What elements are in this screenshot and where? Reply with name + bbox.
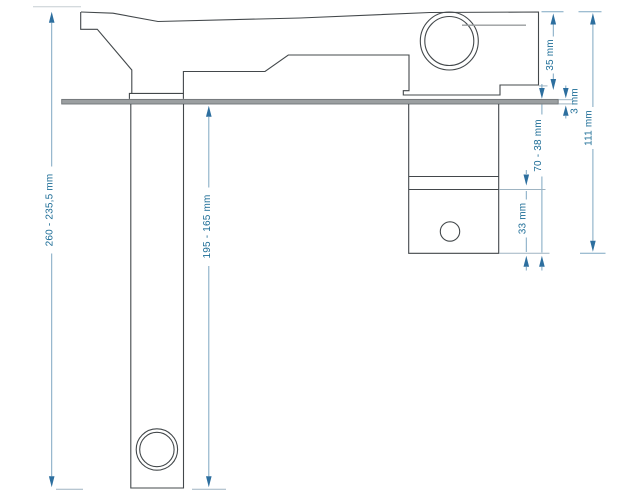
- faucet-dimension-diagram: 260 - 235,5 mm 195 - 165 mm 35 mm 3 mm: [0, 0, 643, 500]
- downpipe-outlet-outer-circle: [136, 429, 177, 470]
- mounting-shaft-path: [409, 104, 499, 253]
- faucet-body-outline: [81, 12, 539, 99]
- dim-35-arrow-down: [551, 79, 557, 90]
- mounting-screw-hole: [440, 222, 459, 241]
- dim-111-arrow-down: [590, 241, 596, 252]
- dim-111-label: 111 mm: [584, 110, 595, 146]
- dim-33-arrow-down-top: [524, 175, 530, 186]
- dim-total-height-label: 260 - 235,5 mm: [44, 174, 55, 247]
- downpipe: [131, 104, 184, 488]
- dim-35-label: 35 mm: [545, 39, 556, 71]
- dim-70-arrow-down-top: [539, 88, 545, 99]
- dim-body-height: 35 mm: [539, 12, 564, 90]
- dim-under-counter-clearance: 195 - 165 mm: [192, 106, 226, 490]
- control-cartridge-inner-circle: [425, 17, 474, 66]
- dim-total-height-arrow-down: [49, 476, 55, 487]
- control-cartridge-outer-circle: [420, 12, 478, 70]
- technical-drawing-canvas: 260 - 235,5 mm 195 - 165 mm 35 mm 3 mm: [0, 0, 643, 500]
- dim-counter-thickness: 3 mm: [559, 86, 581, 119]
- dim-total-height: 260 - 235,5 mm: [33, 7, 83, 490]
- dim-70-arrow-up-bottom: [539, 256, 545, 267]
- dim-3-label: 3 mm: [570, 88, 581, 114]
- dim-33-label: 33 mm: [518, 203, 529, 235]
- mounting-shaft-box: [409, 104, 499, 253]
- dim-70-label: 70 - 38 mm: [533, 119, 544, 172]
- counter-plate: [62, 99, 559, 104]
- dim-3-arrow-up: [563, 106, 569, 116]
- dim-clearance-arrow-down: [206, 476, 212, 487]
- dim-111-arrow-up: [590, 13, 596, 25]
- dim-3-arrow-down: [563, 88, 569, 98]
- dim-total-height-arrow-up: [49, 12, 55, 23]
- dim-right-total: 111 mm: [579, 12, 606, 254]
- dim-clearance-arrow-up: [206, 106, 212, 117]
- downpipe-path: [131, 104, 184, 488]
- dim-clamping-range: 70 - 38 mm: [499, 84, 545, 271]
- spout-base-flange-path: [81, 12, 184, 99]
- downpipe-outlet-inner-circle: [140, 432, 174, 466]
- dim-clearance-label: 195 - 165 mm: [202, 194, 213, 258]
- dim-35-arrow-up: [551, 14, 557, 25]
- dim-33-arrow-up-bottom: [524, 256, 530, 267]
